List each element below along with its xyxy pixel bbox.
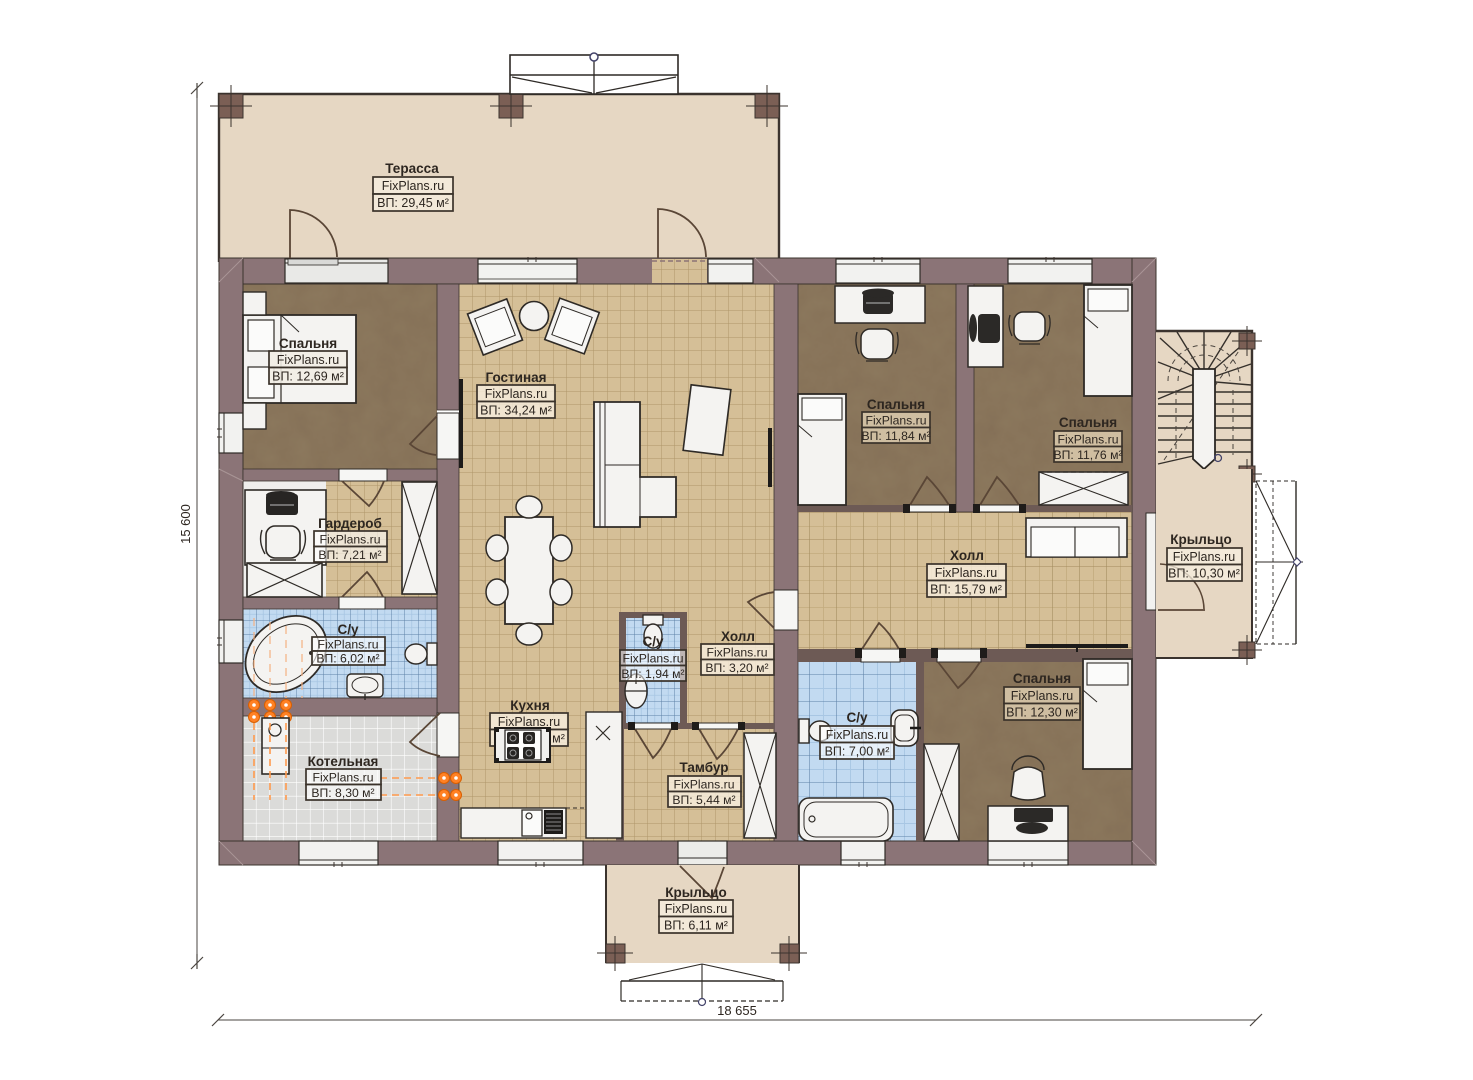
- svg-text:ВП: 5,44 м²: ВП: 5,44 м²: [672, 793, 735, 807]
- svg-text:FixPlans.ru: FixPlans.ru: [313, 771, 374, 785]
- svg-text:FixPlans.ru: FixPlans.ru: [674, 778, 735, 792]
- svg-text:Гостиная: Гостиная: [485, 370, 546, 385]
- svg-text:FixPlans.ru: FixPlans.ru: [485, 387, 548, 401]
- svg-text:FixPlans.ru: FixPlans.ru: [1173, 550, 1236, 564]
- svg-text:ВП: 12,30 м²: ВП: 12,30 м²: [1006, 706, 1078, 720]
- svg-text:С/у: С/у: [846, 710, 868, 725]
- svg-text:FixPlans.ru: FixPlans.ru: [866, 414, 927, 428]
- svg-text:FixPlans.ru: FixPlans.ru: [1058, 433, 1119, 447]
- svg-text:Холл: Холл: [950, 548, 984, 563]
- svg-text:Котельная: Котельная: [308, 754, 379, 769]
- svg-text:FixPlans.ru: FixPlans.ru: [623, 652, 684, 666]
- svg-text:Гардероб: Гардероб: [318, 516, 382, 531]
- svg-text:FixPlans.ru: FixPlans.ru: [498, 715, 561, 729]
- svg-text:FixPlans.ru: FixPlans.ru: [935, 566, 998, 580]
- svg-text:ВП: 6,02 м²: ВП: 6,02 м²: [316, 652, 379, 666]
- svg-text:ВП: 34,24 м²: ВП: 34,24 м²: [480, 404, 552, 418]
- svg-text:Холл: Холл: [721, 629, 755, 644]
- svg-text:Спальня: Спальня: [1059, 415, 1117, 430]
- svg-text:ВП: 15,79 м²: ВП: 15,79 м²: [930, 583, 1002, 597]
- svg-text:Тамбур: Тамбур: [680, 760, 729, 775]
- svg-text:Спальня: Спальня: [1013, 671, 1071, 686]
- svg-text:С/у: С/у: [337, 622, 359, 637]
- svg-text:Спальня: Спальня: [867, 397, 925, 412]
- svg-text:ВП: 29,45 м²: ВП: 29,45 м²: [377, 196, 449, 210]
- svg-text:Крыльцо: Крыльцо: [1170, 532, 1231, 547]
- svg-text:18 655: 18 655: [717, 1003, 757, 1018]
- svg-text:FixPlans.ru: FixPlans.ru: [707, 646, 768, 660]
- svg-text:15 600: 15 600: [178, 504, 193, 544]
- svg-text:FixPlans.ru: FixPlans.ru: [826, 728, 889, 742]
- svg-text:Крыльцо: Крыльцо: [665, 885, 726, 900]
- svg-text:Терасса: Терасса: [385, 161, 439, 176]
- svg-text:ВП: 1,94 м²: ВП: 1,94 м²: [621, 667, 684, 681]
- svg-text:ВП: 7,00 м²: ВП: 7,00 м²: [825, 745, 890, 759]
- svg-text:С/у: С/у: [642, 634, 664, 649]
- svg-text:ВП: 10,30 м²: ВП: 10,30 м²: [1168, 567, 1240, 581]
- svg-text:ВП: 3,20 м²: ВП: 3,20 м²: [705, 661, 768, 675]
- svg-text:FixPlans.ru: FixPlans.ru: [665, 902, 728, 916]
- svg-text:ВП: 11,84 м²: ВП: 11,84 м²: [861, 429, 930, 443]
- svg-text:FixPlans.ru: FixPlans.ru: [277, 353, 340, 367]
- svg-text:FixPlans.ru: FixPlans.ru: [318, 638, 379, 652]
- svg-text:ВП: 12,69 м²: ВП: 12,69 м²: [272, 370, 344, 384]
- svg-text:ВП: 11,76 м²: ВП: 11,76 м²: [1053, 448, 1122, 462]
- svg-text:Спальня: Спальня: [279, 336, 337, 351]
- svg-text:Кухня: Кухня: [510, 698, 549, 713]
- svg-text:ВП: 8,30 м²: ВП: 8,30 м²: [311, 786, 374, 800]
- svg-text:FixPlans.ru: FixPlans.ru: [382, 179, 445, 193]
- svg-text:ВП: 7,21 м²: ВП: 7,21 м²: [318, 548, 381, 562]
- svg-text:FixPlans.ru: FixPlans.ru: [320, 533, 381, 547]
- svg-text:FixPlans.ru: FixPlans.ru: [1011, 689, 1074, 703]
- svg-text:ВП: 6,11 м²: ВП: 6,11 м²: [664, 919, 728, 933]
